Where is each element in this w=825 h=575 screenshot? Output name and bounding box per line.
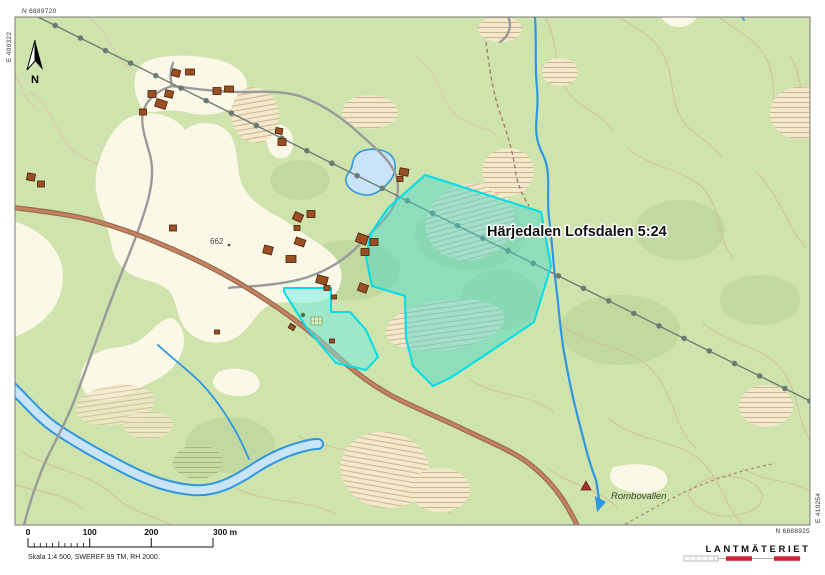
scale-tick-100: 100	[83, 527, 97, 537]
coord-bottom-north: N 6888925	[775, 528, 810, 535]
plantation-symbol	[311, 317, 322, 325]
scale-tick-200: 200	[144, 527, 158, 537]
tree-symbol	[301, 313, 305, 317]
place-label-rombovallen: Rombovallen	[611, 491, 666, 502]
elevation-point	[228, 244, 231, 247]
scale-tick-300: 300 m	[213, 527, 238, 537]
north-label: N	[31, 74, 39, 86]
scale-tick-0: 0	[26, 527, 31, 537]
map-canvas[interactable]: Härjedalen Lofsdalen 5:24 Rombovallen 66…	[0, 0, 825, 575]
coord-right-east: E 410254	[815, 493, 822, 523]
coord-top-north: N 6889720	[22, 8, 57, 15]
surveying-rod-icon	[684, 556, 801, 561]
coord-left-east: E 409322	[6, 32, 13, 62]
elevation-label: 662	[210, 237, 224, 246]
property-title-label: Härjedalen Lofsdalen 5:24	[487, 224, 667, 240]
logo-text: LANTMÄTERIET	[705, 544, 810, 555]
scale-caption: Skala 1:4 500, SWEREF 99 TM, RH 2000.	[28, 554, 160, 561]
map-export-page: Härjedalen Lofsdalen 5:24 Rombovallen 66…	[0, 0, 825, 575]
